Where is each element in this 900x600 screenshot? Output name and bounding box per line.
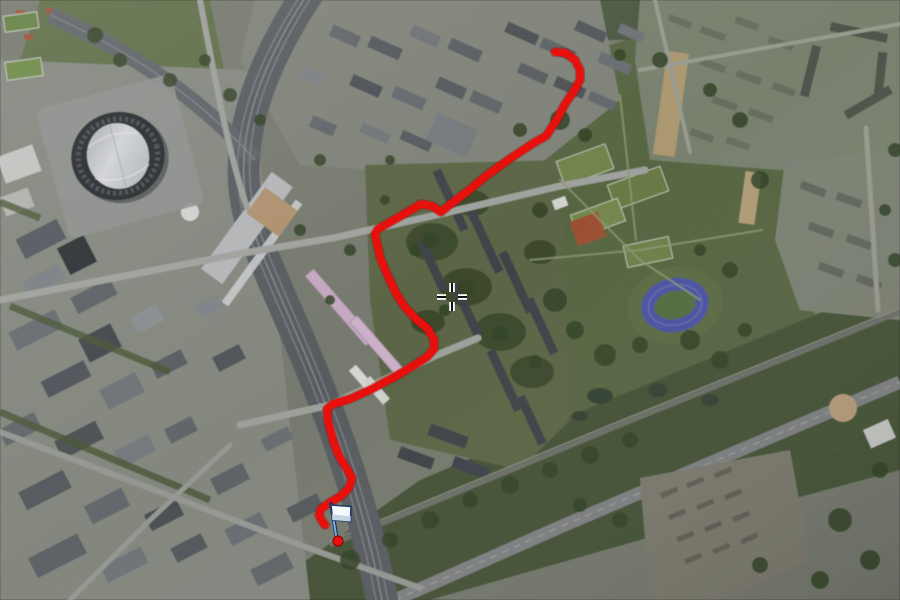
light-sweep bbox=[0, 0, 900, 600]
satellite-map[interactable] bbox=[0, 0, 900, 600]
route-endpoint-dot bbox=[333, 536, 343, 546]
map-viewport[interactable] bbox=[0, 0, 900, 600]
